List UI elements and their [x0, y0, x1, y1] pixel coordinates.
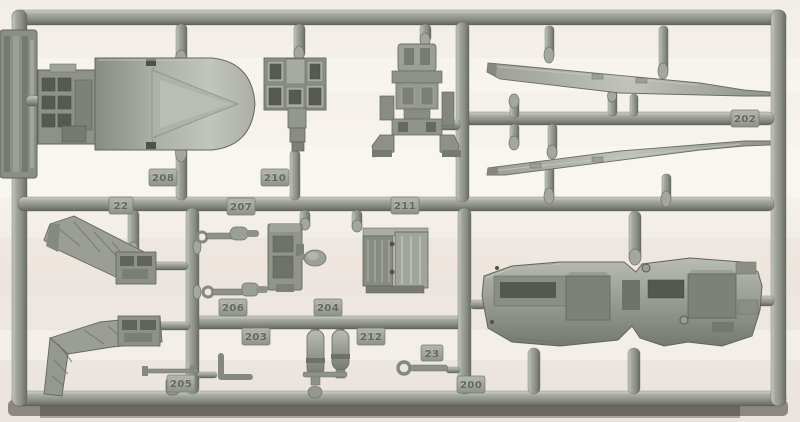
runner-vertical-center-lower [458, 208, 471, 394]
sprue-lug [193, 285, 201, 299]
tag-202: 202 202 [731, 110, 759, 127]
sprue-scene: 208 208 210 210 22 22 207 207 211 211 20… [0, 0, 800, 422]
frame-bottom [12, 391, 786, 406]
sprue-shadow-dark [40, 406, 740, 418]
svg-text:200: 200 [460, 380, 482, 391]
part-avionics-box [363, 228, 428, 293]
svg-text:207: 207 [230, 202, 252, 213]
tag-204: 204 204 [314, 299, 342, 316]
tag-207: 207 207 [227, 198, 255, 215]
svg-text:211: 211 [394, 201, 416, 212]
tag-211: 211 211 [391, 197, 419, 214]
svg-text:210: 210 [264, 173, 286, 184]
light-streak [0, 146, 800, 198]
svg-text:202: 202 [734, 114, 756, 125]
sprue-stub [290, 150, 300, 200]
tag-22: 22 22 [109, 197, 133, 214]
svg-text:204: 204 [317, 303, 339, 314]
runner-horizontal-right [462, 112, 774, 125]
part-cockpit-floor [482, 258, 762, 346]
svg-text:23: 23 [425, 349, 440, 360]
sprue-lug [547, 145, 557, 159]
svg-text:212: 212 [360, 332, 382, 343]
sprue-lug [509, 94, 519, 108]
tag-200: 200 200 [457, 376, 485, 393]
tag-208: 208 208 [149, 169, 177, 186]
sprue-lug [544, 188, 554, 204]
sprue-stub [630, 94, 638, 116]
tag-203: 203 203 [242, 328, 270, 345]
sprue-stub [197, 372, 217, 378]
part-cowling [38, 58, 255, 150]
sprue-lug [629, 249, 641, 265]
sprue-lug [544, 47, 554, 63]
frame-top [12, 10, 786, 25]
svg-text:205: 205 [170, 379, 192, 390]
svg-text:206: 206 [222, 303, 244, 314]
tag-205: 205 205 [167, 375, 195, 392]
runner-vertical-center [456, 22, 469, 202]
sprue-lug [352, 220, 362, 232]
svg-text:203: 203 [245, 332, 267, 343]
tag-212: 212 212 [357, 328, 385, 345]
tag-210: 210 210 [261, 169, 289, 186]
svg-text:22: 22 [114, 201, 129, 212]
sprue-lug [661, 191, 671, 207]
tag-23: 23 23 [421, 345, 443, 361]
sprue-stub [528, 348, 540, 394]
tag-206: 206 206 [219, 299, 247, 316]
sprue-lug [658, 63, 668, 79]
sprue-lug [509, 136, 519, 150]
runner-horizontal-lower-left [188, 316, 470, 329]
sprue-stub [628, 348, 640, 394]
svg-text:208: 208 [152, 173, 174, 184]
sprue-photo: 208 208 210 210 22 22 207 207 211 211 20… [0, 0, 800, 422]
